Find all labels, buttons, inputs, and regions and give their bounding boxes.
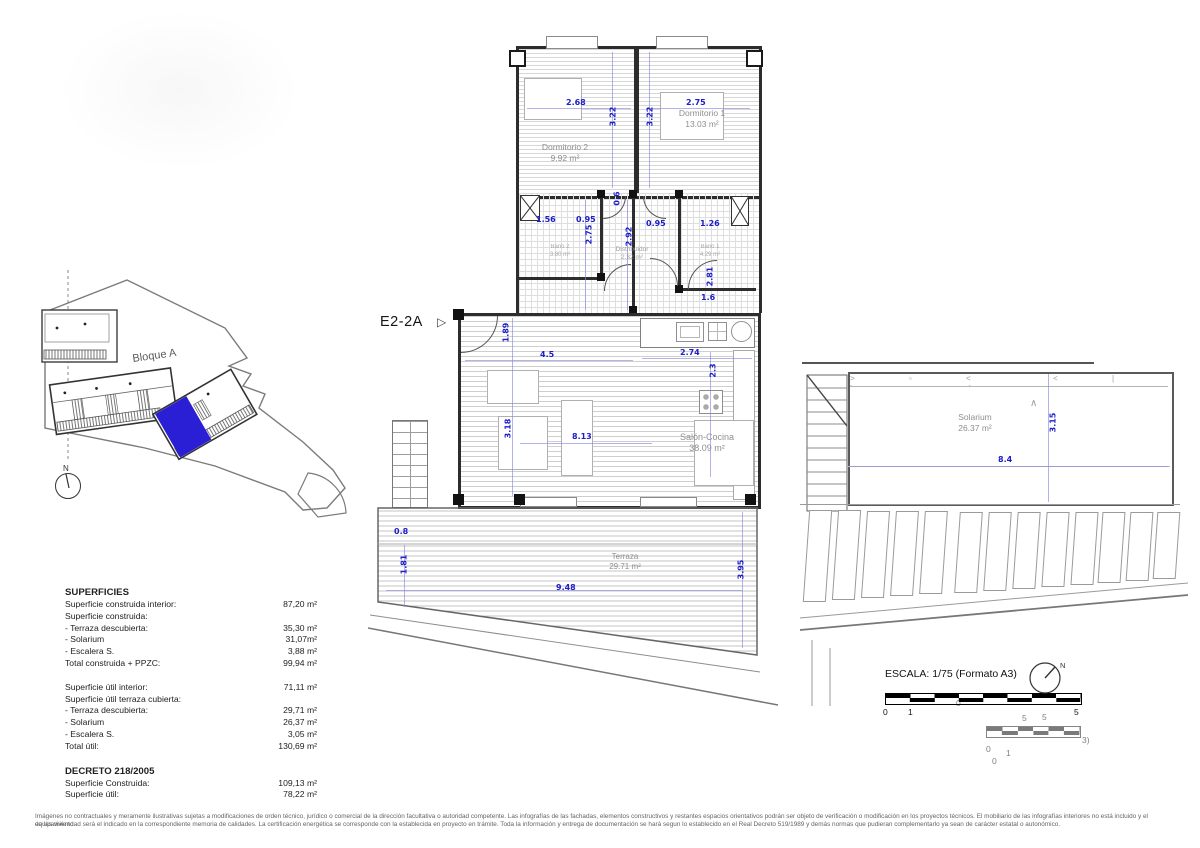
dim-label: 3.22 xyxy=(609,104,618,130)
stairs-left xyxy=(392,420,428,508)
dimension-line xyxy=(512,318,513,496)
dim-label: 0.8 xyxy=(394,527,408,536)
dim-label: 1.26 xyxy=(700,219,720,228)
decree-title: DECRETO 218/2005 xyxy=(65,765,317,778)
unit-label: E2-2A xyxy=(380,314,423,330)
dimension-line xyxy=(850,466,1168,467)
room-label-solarium: Solarium 26.37 m² xyxy=(936,412,1014,433)
dim-label: 2.81 xyxy=(706,264,715,290)
site-plan: Bloque A N xyxy=(15,270,355,520)
table-row: - Terraza descubierta:29,71 m² xyxy=(65,705,317,717)
dim-label: 3.95 xyxy=(737,557,746,583)
dim-label: 2.68 xyxy=(566,98,586,107)
plan-sheet: Dormitorio 2 9.92 m² Dormitorio 1 13.03 … xyxy=(0,0,1200,848)
slats-top-line xyxy=(800,504,1180,505)
ghost-scale-tick: 1 xyxy=(1006,748,1011,758)
svg-text:N: N xyxy=(1060,661,1065,670)
surfaces-table: SUPERFICIES Superficie construida interi… xyxy=(65,586,317,801)
window xyxy=(656,36,708,49)
table-row: - Solarium31,07m² xyxy=(65,634,317,646)
room-label-salon: Salón-Cocina 38.09 m² xyxy=(666,432,748,455)
scale-tick: 0 xyxy=(883,707,888,717)
scale-tick: 5 xyxy=(1074,707,1079,717)
dim-label: 2.75 xyxy=(585,222,594,248)
dim-label: 2.92 xyxy=(625,224,634,250)
table-row: Superficie Construida:109,13 m² xyxy=(65,778,317,790)
north-compass-icon: N xyxy=(56,464,81,499)
dim-label: 1.6 xyxy=(701,293,715,302)
ghost-scale-tick: 0 xyxy=(986,744,991,754)
table-row: - Solarium26,37 m² xyxy=(65,717,317,729)
room-label-dorm2: Dormitorio 2 9.92 m² xyxy=(528,142,602,163)
dim-label: 3.15 xyxy=(1049,410,1058,436)
dim-label: 0.6 xyxy=(613,186,622,212)
shaft-right-icon xyxy=(731,196,749,226)
louvre-slat xyxy=(1126,512,1154,581)
scale-tick: 1 xyxy=(908,707,913,717)
louvre-slat xyxy=(1153,512,1181,579)
pier xyxy=(629,190,637,198)
pier xyxy=(453,309,464,320)
kitchen-sink-icon xyxy=(676,322,704,342)
scale-north-compass-icon: N xyxy=(1024,658,1074,698)
dimension-line xyxy=(520,443,652,444)
dim-label: 3.22 xyxy=(646,104,655,130)
dim-label: 0.95 xyxy=(646,219,666,228)
table-row: Superficie útil terraza cubierta: xyxy=(65,694,317,706)
unit-pointer-icon: ▷ xyxy=(437,315,446,329)
ghost-scale-tick: 0 xyxy=(992,756,997,766)
dim-label: 8.13 xyxy=(572,432,592,441)
room-label-dorm1: Dormitorio 1 13.03 m² xyxy=(664,108,740,129)
wall xyxy=(678,193,681,290)
dimension-line xyxy=(465,360,633,361)
solarium-tick-row: > ▫ < < | > ▫ < xyxy=(850,374,1168,387)
round-fixture-icon xyxy=(731,321,752,342)
dim-label: 2.3 xyxy=(709,358,718,384)
dim-label: 2.74 xyxy=(680,348,700,357)
window xyxy=(546,36,598,49)
wall xyxy=(516,277,603,280)
dim-label: 9.48 xyxy=(556,583,576,592)
table-row: Total construida + PPZC:99,94 m² xyxy=(65,658,317,670)
surfaces-title: SUPERFICIES xyxy=(65,586,317,599)
solarium-stairs xyxy=(806,374,848,512)
dim-label: 1.56 xyxy=(536,215,556,224)
terrace-deck xyxy=(378,508,757,655)
pier xyxy=(675,285,683,293)
table-row: Superficie construida interior:87,20 m² xyxy=(65,599,317,611)
site-building-1 xyxy=(42,310,117,362)
table-row: Total útil:130,69 m² xyxy=(65,741,317,753)
ghost-scale-bar xyxy=(986,726,1081,738)
room-label-bath1: Baño 1 4.29 m² xyxy=(684,244,736,259)
dishwasher-icon xyxy=(708,322,727,341)
column xyxy=(509,50,526,67)
solarium-room xyxy=(848,372,1174,506)
ghost-scale-tick: 3) xyxy=(1082,735,1090,745)
pier xyxy=(675,190,683,198)
room-label-terrace: Terraza 29.71 m² xyxy=(588,552,662,572)
table-row: - Escalera S.3,88 m² xyxy=(65,646,317,658)
ghost-scale-tick: 5 xyxy=(1042,712,1047,722)
scale-label: ESCALA: 1/75 (Formato A3) xyxy=(885,668,1017,680)
dim-label: 2.75 xyxy=(686,98,706,107)
dim-label: 1.81 xyxy=(400,552,409,578)
table-row: - Escalera S.3,05 m² xyxy=(65,729,317,741)
dimension-line xyxy=(642,358,752,359)
hob-icon xyxy=(699,390,723,414)
ghost-scale-tick: 5 xyxy=(1022,713,1027,723)
dim-label: 3.18 xyxy=(504,416,513,442)
disclaimer-line-2: de las viviendad será el indicado en la … xyxy=(35,821,1167,829)
dimension-line xyxy=(1048,374,1049,502)
dimension-line xyxy=(627,200,628,310)
room-label-bath2: Baño 2 3.80 m² xyxy=(532,244,588,259)
table-row: Superficie útil interior:71,11 m² xyxy=(65,682,317,694)
dim-label: 1.89 xyxy=(502,320,511,346)
table-row: Superficie útil:78,22 m² xyxy=(65,789,317,801)
column xyxy=(746,50,763,67)
block-label: Bloque A xyxy=(132,347,178,365)
table-row: Superficie construida: xyxy=(65,611,317,623)
watermark xyxy=(60,10,300,170)
table-row: - Terraza descubierta:35,30 m² xyxy=(65,623,317,635)
bedroom-divider-wall xyxy=(634,46,639,193)
slope-mark-icon: ∧ xyxy=(1030,398,1037,409)
dim-label: 8.4 xyxy=(998,455,1012,464)
solarium-boundary-top xyxy=(802,362,1094,364)
dimension-line xyxy=(646,108,750,109)
pier xyxy=(597,273,605,281)
dim-label: 4.5 xyxy=(540,350,554,359)
ghost-scale-tick: 0 xyxy=(956,698,961,708)
furniture xyxy=(487,370,539,404)
svg-text:N: N xyxy=(63,464,69,473)
